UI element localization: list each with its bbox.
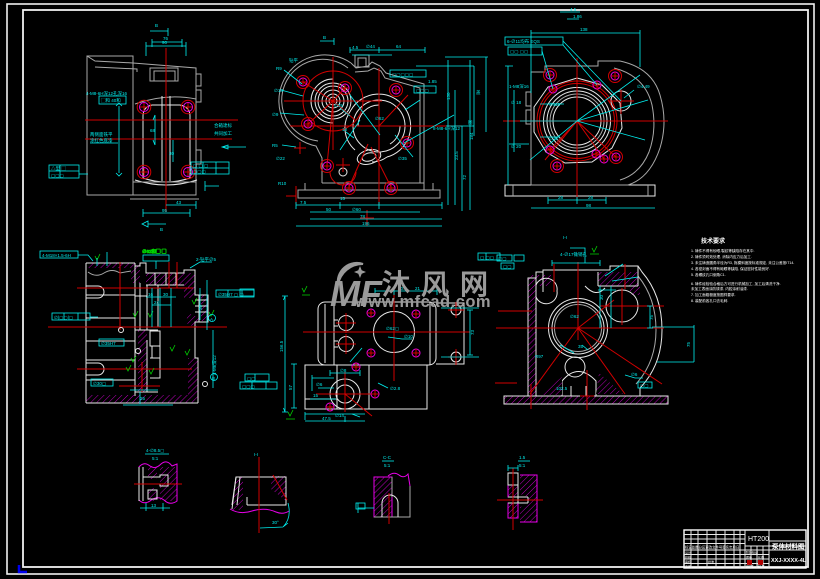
svg-text:▢▢ ▢▢: ▢▢ ▢▢ [510,49,529,54]
svg-text:∅62: ∅62 [570,314,579,319]
svg-text:∅6: ∅6 [631,372,638,377]
svg-text:审核: 审核 [685,559,691,564]
svg-text:7. 加工面粗糙度按图样要求.: 7. 加工面粗糙度按图样要求. [691,292,736,297]
svg-text:合箱達标: 合箱達标 [214,122,232,129]
svg-text:90: 90 [162,40,168,45]
svg-text:18: 18 [342,127,348,132]
svg-text:B: B [212,376,215,381]
svg-text:2-钻平∅5: 2-钻平∅5 [196,256,217,263]
svg-text:▢和 40和: ▢和 40和 [101,97,121,104]
svg-text:XXJ-XXXX-4L: XXJ-XXXX-4L [771,558,807,564]
svg-text:∅62: ∅62 [375,116,384,121]
svg-text:1.86: 1.86 [573,14,582,19]
svg-text:1.5: 1.5 [519,455,526,460]
svg-text:95: 95 [162,208,168,213]
svg-text:78: 78 [360,214,366,219]
svg-text:1-M8深16: 1-M8深16 [509,83,529,90]
svg-text:98: 98 [586,203,592,208]
svg-text:▢▢▢: ▢▢▢ [416,88,430,93]
svg-text:B: B [160,227,163,232]
svg-text:4. 各密封面不得有砲眼等缺陷, 保证密封性能良好.: 4. 各密封面不得有砲眼等缺陷, 保证密封性能良好. [691,266,770,271]
svg-text:▢ ▢▢: ▢ ▢▢ [480,255,495,260]
svg-text:∅10: ∅10 [404,334,413,339]
svg-text:184: 184 [469,132,474,140]
svg-text:68: 68 [150,128,156,133]
svg-text:盖: 盖 [476,89,481,95]
svg-text:4-∅8.5▢: 4-∅8.5▢ [146,448,165,453]
svg-text:HT200: HT200 [748,536,769,543]
svg-text:第1张: 第1张 [757,563,765,568]
svg-text:8. 装配前各孔口去毛刺.: 8. 装配前各孔口去毛刺. [691,298,728,303]
svg-text:▢▢: ▢▢ [498,256,507,261]
svg-text:共同加工: 共同加工 [214,130,232,137]
svg-text:30: 30 [169,151,175,156]
svg-text:▢▢: ▢▢ [640,383,649,388]
svg-text:阶段标记: 阶段标记 [746,550,758,555]
svg-text:工艺: 工艺 [685,564,691,569]
svg-text:设计: 设计 [685,550,691,555]
svg-text:A: A [210,317,213,322]
svg-text:▢▢: ▢▢ [247,376,256,381]
svg-text:∅2.8: ∅2.8 [390,386,401,391]
svg-text:35: 35 [578,344,584,349]
svg-text:B: B [155,23,158,28]
svg-text:102.5: 102.5 [556,386,568,391]
svg-text:28: 28 [558,195,564,200]
svg-text:4.5: 4.5 [570,7,577,12]
svg-text:www.mfcad.com: www.mfcad.com [354,293,491,311]
svg-text:5. 各螺纹孔口倒角C1.: 5. 各螺纹孔口倒角C1. [691,272,726,277]
svg-text:未加工表面涂防锈漆, 内腔涂耐油漆.: 未加工表面涂防锈漆, 内腔涂耐油漆. [691,286,748,291]
svg-text:▢▢▢: ▢▢▢ [51,173,65,178]
svg-text:4.5: 4.5 [352,45,359,50]
svg-text:43: 43 [176,200,182,205]
svg-text:∅35H7: ∅35H7 [101,341,116,346]
svg-text:23.5: 23.5 [454,151,459,160]
svg-text:57: 57 [288,384,293,390]
svg-text:C-C: C-C [383,455,392,460]
svg-text:两侧面铣平: 两侧面铣平 [90,131,113,138]
svg-text:6. 铸件经检验合格后方可进行机械加工, 加工后清洗干净.: 6. 铸件经检验合格后方可进行机械加工, 加工后清洗干净. [691,281,781,286]
svg-text:47.5: 47.5 [322,416,331,421]
svg-text:5:1: 5:1 [152,456,159,461]
svg-text:∅|▢▢|▢: ∅|▢▢|▢ [54,315,74,320]
svg-text:7.5: 7.5 [300,200,307,205]
svg-text:50: 50 [326,207,332,212]
svg-text:∅18: ∅18 [274,88,283,93]
svg-text:∅4.49: ∅4.49 [637,84,650,89]
svg-text:156.5: 156.5 [279,340,284,352]
svg-text:75: 75 [649,314,654,320]
svg-text:4-∅17锄销孔: 4-∅17锄销孔 [560,251,588,258]
svg-text:∅35: ∅35 [398,156,407,161]
svg-text:I-I: I-I [254,452,258,457]
svg-text:技术要求: 技术要求 [701,237,726,245]
svg-text:6-∅11均布 EQS: 6-∅11均布 EQS [507,38,540,45]
svg-text:15: 15 [340,196,346,201]
svg-text:72: 72 [462,174,467,180]
svg-text:∅9: ∅9 [272,112,279,117]
svg-text:▢ ▢ ▢: ▢ ▢ ▢ [193,163,209,168]
svg-text:1. 铸件不得有砂眼,裂纹等缺陷存在其中.: 1. 铸件不得有砂眼,裂纹等缺陷存在其中. [691,248,755,253]
svg-text:3. 未注铸造圆角半径为R3, 拖模斜度按标准规定, 未注公: 3. 未注铸造圆角半径为R3, 拖模斜度按标准规定, 未注公差按IT14. [691,260,794,265]
svg-text:∅44: ∅44 [366,44,375,49]
svg-text:16: 16 [148,292,154,297]
svg-text:质量: 质量 [746,555,752,560]
svg-text:5:1: 5:1 [519,463,526,468]
svg-text:校核: 校核 [685,555,691,560]
svg-text:2. 铸件须时效处理, 消除内应力后加工.: 2. 铸件须时效处理, 消除内应力后加工. [691,254,752,259]
svg-text:▢▢▢▢▢: ▢▢▢▢▢ [392,72,414,77]
svg-text:∅ 18: ∅ 18 [511,100,522,105]
svg-text:∅60: ∅60 [352,207,361,212]
svg-text:∅35: ∅35 [334,103,343,108]
svg-text:35: 35 [198,304,203,310]
svg-text:∅8: ∅8 [340,368,347,373]
svg-text:R5: R5 [272,143,278,148]
svg-text:138: 138 [580,27,588,32]
svg-text:R9: R9 [276,66,282,71]
svg-text:1.85: 1.85 [428,79,437,84]
svg-text:∅62和▢ ▢: ∅62和▢ ▢ [142,248,167,255]
svg-text:△型 ▢: △型 ▢ [51,165,66,172]
svg-text:∅110: ∅110 [549,102,561,107]
svg-text:30: 30 [163,292,169,297]
svg-text:涂红色底漆: 涂红色底漆 [90,137,113,144]
svg-text:I-I: I-I [563,235,567,240]
svg-text:共1张: 共1张 [746,563,754,568]
svg-text:钻平: 钻平 [289,57,298,64]
svg-text:▢▢▢: ▢▢▢ [193,169,207,174]
svg-text:B: B [323,35,326,40]
svg-text:4-M6深12: 4-M6深12 [211,355,218,375]
svg-text:4-M18×1.5-6H: 4-M18×1.5-6H [42,253,71,258]
svg-text:5:1: 5:1 [384,463,391,468]
svg-text:批准: 批准 [708,559,714,564]
svg-text:75: 75 [686,341,691,347]
svg-text:∅22: ∅22 [276,156,285,161]
svg-text:30: 30 [599,294,604,300]
svg-text:∅62▢: ∅62▢ [386,326,400,331]
svg-text:比例: 比例 [758,555,764,560]
svg-text:15: 15 [313,393,319,398]
svg-text:∅ 20: ∅ 20 [511,144,522,149]
svg-text:25: 25 [140,396,146,401]
svg-text:R10: R10 [278,181,287,186]
svg-text:196: 196 [362,221,370,226]
svg-text:73: 73 [470,329,475,335]
svg-text:24: 24 [154,300,160,305]
svg-text:泵体材料图: 泵体材料图 [771,542,805,551]
svg-text:▢▢: ▢▢ [503,264,512,269]
svg-text:30°: 30° [272,520,279,525]
svg-text:13: 13 [151,503,157,508]
svg-text:∅30▢: ∅30▢ [93,381,107,386]
svg-text:▢▢▢: ▢▢▢ [242,384,256,389]
svg-text:130: 130 [446,92,451,100]
svg-text:∅75: ∅75 [549,136,558,141]
svg-text:R97: R97 [535,354,544,359]
svg-text:64: 64 [396,44,402,49]
svg-text:∅6: ∅6 [316,382,323,387]
svg-text:28: 28 [588,195,594,200]
svg-text:标记处数分区更改文件号签名年月日: 标记处数分区更改文件号签名年月日 [685,545,739,550]
